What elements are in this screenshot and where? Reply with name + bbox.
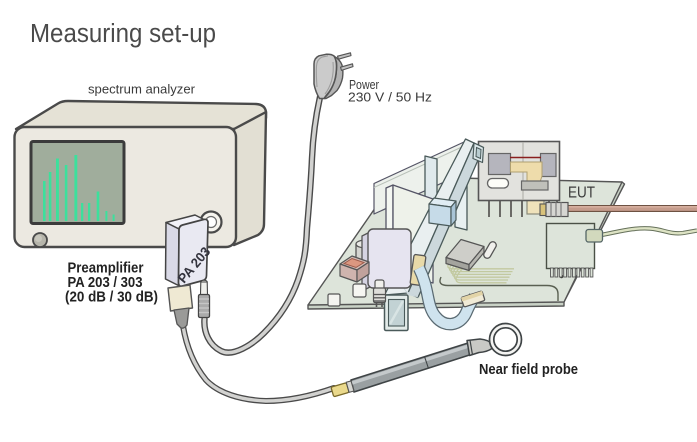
svg-text:Near field probe: Near field probe [479,361,578,378]
svg-text:EUT: EUT [568,185,595,202]
svg-text:Measuring set-up: Measuring set-up [30,20,216,48]
svg-text:230 V / 50 Hz: 230 V / 50 Hz [348,91,432,105]
svg-text:(20 dB / 30 dB): (20 dB / 30 dB) [65,289,158,306]
svg-text:spectrum analyzer: spectrum analyzer [88,82,196,97]
